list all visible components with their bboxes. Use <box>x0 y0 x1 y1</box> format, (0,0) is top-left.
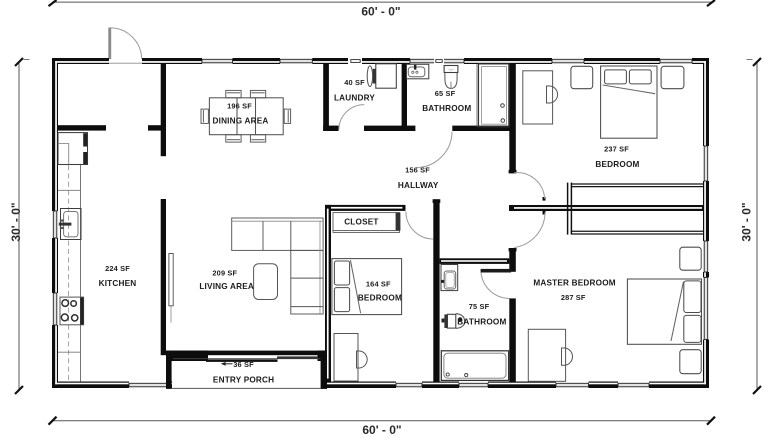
svg-text:HALLWAY: HALLWAY <box>398 181 439 190</box>
svg-text:224 SF: 224 SF <box>105 264 130 273</box>
svg-text:LIVING AREA: LIVING AREA <box>199 282 254 291</box>
svg-text:BATHROOM: BATHROOM <box>422 104 471 113</box>
svg-text:40 SF: 40 SF <box>344 78 365 87</box>
svg-text:BEDROOM: BEDROOM <box>358 293 402 302</box>
svg-text:65 SF: 65 SF <box>435 89 456 98</box>
svg-text:164 SF: 164 SF <box>366 279 391 288</box>
svg-text:MASTER BEDROOM: MASTER BEDROOM <box>533 279 615 288</box>
svg-text:156 SF: 156 SF <box>405 166 430 175</box>
svg-text:60' - 0": 60' - 0" <box>362 423 401 437</box>
svg-text:LAUNDRY: LAUNDRY <box>334 94 375 103</box>
svg-text:30' - 0": 30' - 0" <box>9 202 23 241</box>
svg-text:196 SF: 196 SF <box>227 101 252 110</box>
svg-text:BATHROOM: BATHROOM <box>457 318 506 327</box>
svg-text:30' - 0": 30' - 0" <box>740 202 754 241</box>
svg-text:60' - 0": 60' - 0" <box>361 5 400 19</box>
svg-text:75 SF: 75 SF <box>469 302 490 311</box>
svg-text:ENTRY PORCH: ENTRY PORCH <box>213 376 274 385</box>
svg-text:KITCHEN: KITCHEN <box>99 279 137 288</box>
svg-text:237 SF: 237 SF <box>604 144 629 153</box>
svg-text:BEDROOM: BEDROOM <box>595 160 639 169</box>
svg-text:287 SF: 287 SF <box>561 293 586 302</box>
svg-text:DINING AREA: DINING AREA <box>212 116 268 125</box>
svg-text:209 SF: 209 SF <box>212 269 237 278</box>
svg-text:36 SF: 36 SF <box>233 360 254 369</box>
svg-text:CLOSET: CLOSET <box>344 218 378 227</box>
